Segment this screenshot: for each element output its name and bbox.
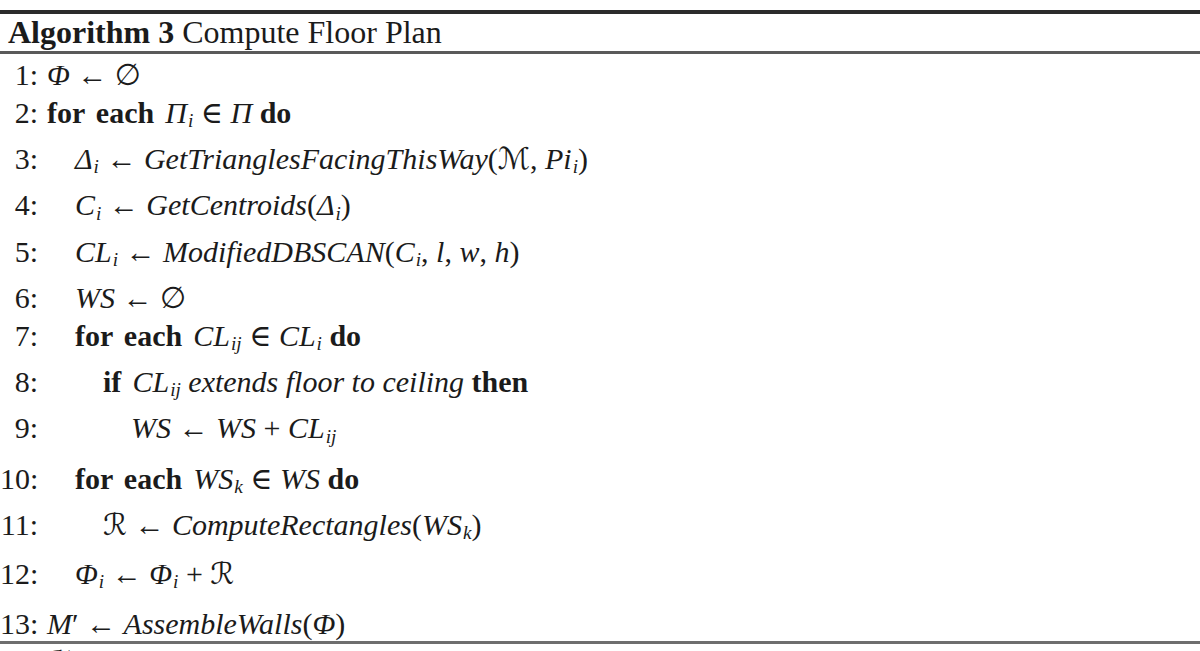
algorithm-line: 10:for each WSk ∈ WS do bbox=[0, 460, 1200, 506]
code-segment: WS bbox=[280, 462, 320, 495]
line-content: M′ ← AssembleWalls(Φ) bbox=[47, 607, 345, 640]
line-number: 5: bbox=[0, 233, 38, 271]
code-segment: ij bbox=[231, 333, 242, 354]
code-segment: for each bbox=[75, 462, 193, 495]
code-segment: CL bbox=[193, 319, 230, 352]
algorithm-line: 13:M′ ← AssembleWalls(Φ) bbox=[0, 605, 1200, 643]
line-content: if CLij extends floor to ceiling then bbox=[47, 365, 528, 398]
code-segment: + bbox=[178, 557, 210, 590]
code-segment: M bbox=[518, 645, 543, 651]
code-segment: , bbox=[479, 235, 494, 268]
line-content: Ci ← GetCentroids(Δi) bbox=[47, 188, 351, 221]
code-segment: then bbox=[472, 365, 529, 398]
code-segment: do bbox=[260, 96, 292, 129]
code-segment: ij bbox=[326, 426, 337, 447]
code-segment: ℱ bbox=[47, 644, 71, 651]
line-number: 13: bbox=[0, 605, 38, 643]
bottom-rule bbox=[0, 641, 1200, 644]
code-segment: k bbox=[234, 476, 243, 497]
algorithm-line: 5:CLi ← ModifiedDBSCAN(Ci, l, w, h) bbox=[0, 233, 1200, 279]
algorithm-body: 1:Φ ← ∅2:for each Πi ∈ Π do3:Δi ← GetTri… bbox=[0, 56, 1200, 651]
line-number: 2: bbox=[0, 94, 38, 132]
code-segment: do bbox=[328, 462, 360, 495]
algorithm-line: 6:WS ← ∅ bbox=[0, 279, 1200, 317]
algorithm-line: 9:WS ← WS + CLij bbox=[0, 409, 1200, 455]
line-number: 1: bbox=[0, 56, 38, 94]
algorithm-line: 11:ℛ ← ComputeRectangles(WSk) bbox=[0, 506, 1200, 552]
line-number: 3: bbox=[0, 140, 38, 178]
code-segment: ( bbox=[307, 188, 317, 221]
line-content: WS ← WS + CLij bbox=[47, 411, 336, 444]
code-segment: C bbox=[395, 235, 415, 268]
algorithm-line: 2:for each Πi ∈ Π do bbox=[0, 94, 1200, 140]
code-segment: ← bbox=[70, 58, 115, 91]
code-segment: Φ bbox=[47, 58, 70, 91]
code-segment: Π bbox=[231, 96, 253, 129]
line-number: 7: bbox=[0, 317, 38, 355]
algorithm-caption: Algorithm 3 Compute Floor Plan bbox=[8, 15, 442, 49]
line-content: ℱP ←ComputeAndSuperimposeSlices(M′) bbox=[47, 645, 560, 651]
algorithm-title: Compute Floor Plan bbox=[182, 14, 442, 50]
algorithm-figure: Algorithm 3 Compute Floor Plan 1:Φ ← ∅2:… bbox=[0, 0, 1200, 651]
code-segment: ( bbox=[302, 607, 312, 640]
code-segment: ModifiedDBSCAN bbox=[163, 235, 385, 268]
code-segment: , bbox=[530, 142, 545, 175]
code-segment: ← bbox=[118, 235, 163, 268]
code-segment: ) bbox=[550, 645, 560, 651]
code-segment: extends floor to ceiling bbox=[181, 365, 472, 398]
algorithm-line: 14:ℱP ←ComputeAndSuperimposeSlices(M′) bbox=[0, 643, 1200, 651]
code-segment: w bbox=[459, 235, 479, 268]
code-segment: ( bbox=[412, 508, 422, 541]
line-content: WS ← ∅ bbox=[47, 281, 186, 314]
code-segment: CL bbox=[75, 235, 112, 268]
line-number: 11: bbox=[0, 506, 38, 544]
code-segment: ) bbox=[578, 142, 588, 175]
algorithm-line: 12:Φi ← Φi + ℛ bbox=[0, 555, 1200, 601]
code-segment: WS bbox=[216, 411, 256, 444]
line-content: for each WSk ∈ WS do bbox=[47, 462, 359, 495]
code-segment: ← bbox=[171, 411, 216, 444]
code-segment: ( bbox=[385, 235, 395, 268]
line-number: 10: bbox=[0, 460, 38, 498]
line-number: 8: bbox=[0, 363, 38, 401]
algorithm-line: 4:Ci ← GetCentroids(Δi) bbox=[0, 186, 1200, 232]
code-segment: ComputeAndSuperimposeSlices bbox=[126, 645, 508, 651]
line-number: 12: bbox=[0, 555, 38, 593]
code-segment: Δ bbox=[317, 188, 335, 221]
code-segment: AssembleWalls bbox=[124, 607, 303, 640]
code-segment: Δ bbox=[75, 142, 93, 175]
code-segment: ComputeRectangles bbox=[172, 508, 412, 541]
code-segment: ∅ bbox=[115, 58, 141, 91]
algorithm-line: 7:for each CLij ∈ CLi do bbox=[0, 317, 1200, 363]
code-segment: ij bbox=[170, 379, 181, 400]
code-segment: Φ bbox=[149, 557, 172, 590]
code-segment: ← bbox=[104, 557, 149, 590]
code-segment: ∈ bbox=[242, 319, 279, 352]
line-content: Φ ← ∅ bbox=[47, 58, 141, 91]
code-segment: if bbox=[103, 365, 132, 398]
code-segment: ← bbox=[115, 281, 160, 314]
line-content: ℛ ← ComputeRectangles(WSk) bbox=[47, 508, 481, 541]
code-segment: for each bbox=[47, 96, 165, 129]
code-segment: ℳ bbox=[498, 141, 530, 176]
code-segment: ← bbox=[99, 142, 144, 175]
line-content: for each Πi ∈ Π do bbox=[47, 96, 291, 129]
code-segment bbox=[320, 462, 328, 495]
line-number: 9: bbox=[0, 409, 38, 447]
code-segment: ∈ bbox=[193, 96, 230, 129]
code-segment: for each bbox=[75, 319, 193, 352]
line-content: CLi ← ModifiedDBSCAN(Ci, l, w, h) bbox=[47, 235, 519, 268]
code-segment: ← bbox=[89, 645, 127, 651]
code-segment: Π bbox=[165, 96, 187, 129]
line-number: 4: bbox=[0, 186, 38, 224]
code-segment: ( bbox=[508, 645, 518, 651]
code-segment: WS bbox=[131, 411, 171, 444]
code-segment: ← bbox=[79, 607, 124, 640]
code-segment: ( bbox=[488, 142, 498, 175]
code-segment: Pi bbox=[545, 142, 572, 175]
algorithm-line: 8:if CLij extends floor to ceiling then bbox=[0, 363, 1200, 409]
code-segment: ℛ bbox=[103, 507, 127, 542]
line-number: 6: bbox=[0, 279, 38, 317]
code-segment: , bbox=[421, 235, 436, 268]
algorithm-line: 3:Δi ← GetTrianglesFacingThisWay(ℳ, Pii) bbox=[0, 140, 1200, 186]
algorithm-line: 1:Φ ← ∅ bbox=[0, 56, 1200, 94]
code-segment bbox=[252, 96, 260, 129]
algorithm-label: Algorithm 3 bbox=[8, 14, 174, 50]
code-segment: CL bbox=[288, 411, 325, 444]
caption-rule bbox=[0, 51, 1200, 54]
code-segment: , bbox=[444, 235, 459, 268]
code-segment: GetTrianglesFacingThisWay bbox=[144, 142, 488, 175]
code-segment: WS bbox=[193, 462, 233, 495]
code-segment: WS bbox=[422, 508, 462, 541]
code-segment: WS bbox=[75, 281, 115, 314]
code-segment: M bbox=[47, 607, 72, 640]
code-segment: ∅ bbox=[160, 281, 186, 314]
line-content: for each CLij ∈ CLi do bbox=[47, 319, 361, 352]
code-segment: Φ bbox=[312, 607, 335, 640]
code-segment: ) bbox=[341, 188, 351, 221]
code-segment: ) bbox=[509, 235, 519, 268]
code-segment: ) bbox=[335, 607, 345, 640]
code-segment: ∈ bbox=[243, 462, 280, 495]
code-segment: CL bbox=[132, 365, 169, 398]
line-content: Φi ← Φi + ℛ bbox=[47, 557, 234, 590]
code-segment: P bbox=[71, 645, 89, 651]
code-segment: ← bbox=[101, 188, 146, 221]
code-segment: h bbox=[494, 235, 509, 268]
code-segment: GetCentroids bbox=[146, 188, 307, 221]
line-number: 14: bbox=[0, 643, 38, 651]
code-segment: do bbox=[329, 319, 361, 352]
code-segment: Φ bbox=[75, 557, 98, 590]
code-segment: CL bbox=[279, 319, 316, 352]
line-content: Δi ← GetTrianglesFacingThisWay(ℳ, Pii) bbox=[47, 142, 588, 175]
code-segment: ) bbox=[471, 508, 481, 541]
code-segment: + bbox=[256, 411, 288, 444]
code-segment: ← bbox=[127, 508, 172, 541]
code-segment: ℛ bbox=[210, 556, 234, 591]
code-segment: C bbox=[75, 188, 95, 221]
